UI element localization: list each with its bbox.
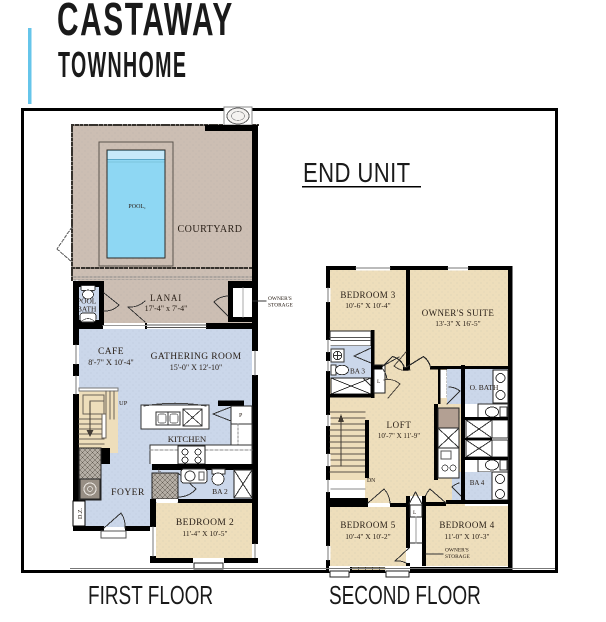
svg-text:CAFE: CAFE	[98, 347, 124, 357]
svg-text:8'-7" X 10'-4": 8'-7" X 10'-4"	[88, 358, 134, 367]
svg-text:KITCHEN: KITCHEN	[168, 434, 207, 444]
svg-text:17'-4" x 7'-4": 17'-4" x 7'-4"	[145, 304, 188, 313]
svg-text:O. BATH: O. BATH	[470, 383, 499, 392]
svg-text:15'-0" X 12'-10": 15'-0" X 12'-10"	[170, 363, 223, 372]
svg-text:COURTYARD: COURTYARD	[177, 224, 242, 235]
svg-text:D.Z.: D.Z.	[78, 508, 84, 519]
svg-text:BEDROOM 5: BEDROOM 5	[340, 520, 395, 530]
svg-text:10'-4" X 10'-2": 10'-4" X 10'-2"	[345, 532, 391, 541]
svg-text:BEDROOM 3: BEDROOM 3	[340, 290, 395, 300]
svg-text:OWNER'S SUITE: OWNER'S SUITE	[422, 308, 495, 318]
svg-text:11'-0" X 10'-3": 11'-0" X 10'-3"	[444, 532, 489, 541]
svg-text:11'-4" X 10'-5": 11'-4" X 10'-5"	[182, 529, 227, 538]
svg-text:BA 3: BA 3	[350, 368, 365, 376]
svg-text:10'-7" X 11'-9": 10'-7" X 11'-9"	[378, 432, 420, 440]
svg-text:10'-6" X 10'-4": 10'-6" X 10'-4"	[345, 301, 391, 310]
svg-text:BEDROOM 2: BEDROOM 2	[176, 518, 234, 528]
svg-text:LANAI: LANAI	[150, 293, 182, 303]
svg-text:BEDROOM 4: BEDROOM 4	[439, 520, 494, 530]
svg-text:BA 2: BA 2	[212, 487, 228, 496]
svg-text:POOL,: POOL,	[128, 204, 146, 210]
svg-text:DN: DN	[367, 478, 376, 484]
svg-text:BA 4: BA 4	[470, 479, 485, 487]
svg-text:FIRST FLOOR: FIRST FLOOR	[88, 580, 213, 610]
svg-text:BATH: BATH	[77, 305, 97, 314]
svg-text:SECOND FLOOR: SECOND FLOOR	[329, 580, 481, 610]
svg-text:OWNER'S: OWNER'S	[268, 296, 292, 302]
svg-text:STORAGE: STORAGE	[268, 303, 293, 309]
svg-text:13'-3" X 16'-5": 13'-3" X 16'-5"	[435, 319, 481, 328]
svg-text:STORAGE: STORAGE	[445, 554, 470, 560]
svg-text:CASTAWAY: CASTAWAY	[57, 0, 234, 46]
svg-text:TOWNHOME: TOWNHOME	[58, 46, 187, 86]
svg-text:LOFT: LOFT	[387, 420, 412, 430]
svg-text:GATHERING ROOM: GATHERING ROOM	[151, 352, 242, 362]
svg-text:FOYER: FOYER	[111, 488, 145, 498]
svg-text:OWNER'S: OWNER'S	[445, 548, 469, 554]
svg-text:END UNIT: END UNIT	[303, 158, 411, 189]
svg-text:UP: UP	[119, 400, 128, 407]
